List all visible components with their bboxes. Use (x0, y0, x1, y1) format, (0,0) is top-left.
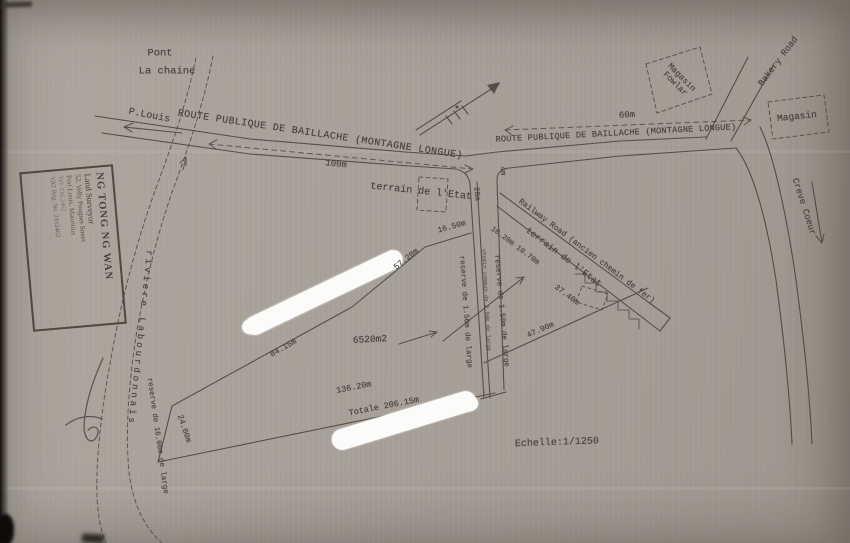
scan-blob-bottomleft (0, 514, 14, 543)
label-pont: Pont (147, 48, 172, 59)
area-arrow (399, 331, 437, 344)
railway-end-tick (660, 318, 670, 331)
surveyor-stamp: NG TONG NG WAN Land Surveyor 52, Velly P… (19, 164, 127, 332)
dim-60m: 60m (619, 111, 636, 121)
scan-smudge-bottom (82, 533, 104, 543)
label-la-chaine: La chaine (139, 66, 196, 77)
scanned-survey-plan: Pont La chaine P.Louis ROUTE PUBLIQUE DE… (0, 0, 850, 543)
terrain-se-box (576, 286, 608, 310)
dim-4m: 4m (497, 166, 506, 176)
label-area: 6520m2 (353, 334, 388, 346)
river-flow-arrow (180, 157, 186, 170)
boundary-nw (158, 233, 471, 462)
white-out-streak-2-blob (462, 396, 478, 411)
plan-linework (0, 0, 850, 543)
north-symbol (416, 84, 499, 135)
scan-smudge-topleft (2, 1, 32, 7)
scan-edge-left (0, 0, 9, 543)
north-symbol-knot (455, 105, 458, 108)
creve-road-right (760, 127, 812, 444)
route-bottom-edge-left (102, 133, 484, 398)
signature-squiggle (66, 358, 103, 441)
north-symbol-flag (487, 82, 500, 94)
dim-28m: 28m (470, 187, 479, 201)
